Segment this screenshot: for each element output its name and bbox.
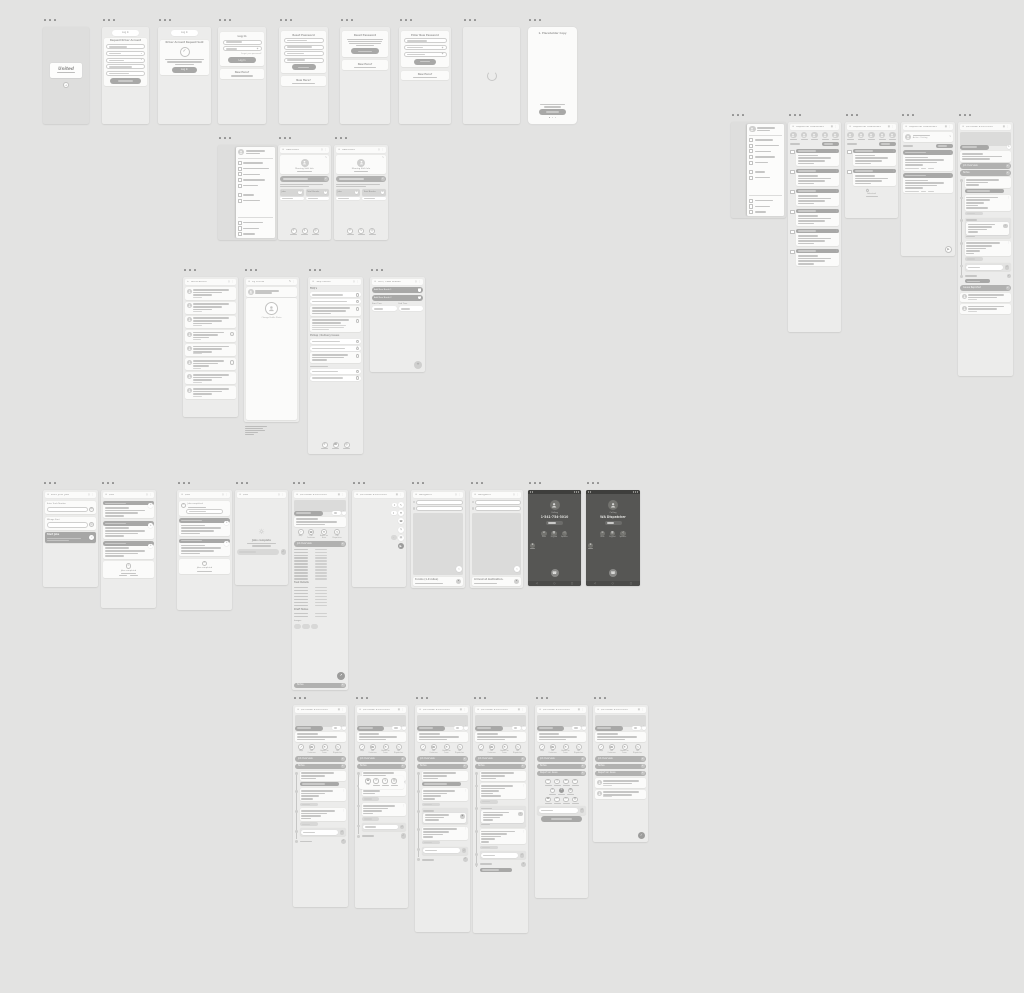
menu-icon[interactable]: ≡ — [597, 709, 599, 711]
frame-options-dots[interactable] — [400, 19, 412, 21]
dots-icon[interactable]: ⋮ — [400, 494, 402, 496]
menu-item[interactable] — [238, 193, 273, 197]
submit-issue-button[interactable] — [541, 816, 583, 822]
menu-icon[interactable]: ≡ — [239, 494, 241, 496]
input-pill[interactable] — [422, 841, 441, 845]
nav-drawer[interactable] — [236, 147, 276, 239]
menu-item[interactable] — [238, 199, 273, 203]
input-pill[interactable] — [106, 71, 145, 76]
section-toggle-button[interactable]: ▾ — [463, 764, 467, 768]
complete-job-button[interactable]: ✓ — [341, 839, 347, 845]
print-icon[interactable]: ▤ — [396, 494, 398, 496]
driver-avatar[interactable] — [790, 132, 797, 139]
frame-request-account[interactable]: Log InRequest Driver Account▾▾ — [102, 27, 149, 124]
frame-job-detail-timeline[interactable]: ≡Job Detail #XXXXXXX▤⋮↻Job Overview▾Note… — [958, 122, 1013, 376]
row-action-button[interactable]: + — [356, 293, 359, 296]
mileage-input[interactable] — [47, 522, 88, 528]
job-card-header[interactable]: ⋮ — [853, 169, 896, 174]
edit-icon[interactable]: ✎ — [949, 136, 951, 139]
payments-icon[interactable]: $ — [563, 797, 569, 803]
note-input[interactable] — [301, 830, 338, 835]
notification-card[interactable] — [960, 293, 1011, 303]
issue-input[interactable] — [539, 808, 579, 813]
frame-new-password[interactable]: Enter New Password◉◉New Here? — [399, 27, 451, 124]
input-pill[interactable]: ▾ — [106, 51, 145, 56]
back-to-job-button[interactable] — [965, 279, 991, 283]
input-pill[interactable] — [106, 64, 145, 69]
send-note-button[interactable]: ↗ — [520, 853, 525, 858]
submit-eod-pill[interactable] — [237, 549, 279, 555]
dots-icon[interactable]: ⋮ — [342, 494, 344, 496]
call-dispatcher-icon[interactable]: ◷Call Dispatcher — [393, 744, 404, 755]
input-pill[interactable] — [284, 45, 324, 50]
job-overview-bar[interactable]: Job Overview▾ — [295, 756, 346, 762]
driver-item[interactable] — [790, 132, 797, 140]
note-menu-icon[interactable]: ⋮ — [464, 828, 466, 831]
dots-icon[interactable]: ⋮ — [835, 126, 837, 128]
bell-icon[interactable]: ○ — [378, 149, 380, 151]
expand-route-button[interactable]: ▴ — [456, 579, 461, 584]
note-menu-icon[interactable]: ⋮ — [402, 805, 404, 808]
notes-bar[interactable]: Notes▾ — [960, 170, 1011, 176]
job-overview-bar[interactable]: Job Overview▴ — [294, 541, 346, 547]
menu-icon[interactable]: ≡ — [374, 281, 376, 283]
dots-icon[interactable]: ⋮ — [1007, 126, 1009, 128]
confirm-pill[interactable] — [965, 189, 1004, 193]
frame-jd-notes-photos[interactable]: ≡Job Detail #XXXXXXX▤⋮↻↗Map☎Call Custome… — [415, 705, 470, 932]
bell-icon[interactable]: ○ — [353, 281, 355, 283]
faq-card-open[interactable]: ✕ — [310, 318, 361, 332]
status-ribbon[interactable] — [357, 726, 384, 731]
note-menu-icon[interactable]: ⋮ — [342, 790, 344, 793]
input-pill[interactable] — [280, 197, 304, 201]
image-thumb[interactable] — [311, 624, 318, 629]
menu-icon[interactable]: ≡ — [849, 126, 851, 128]
login-button[interactable]: Log In — [172, 67, 196, 73]
menu-item[interactable] — [749, 210, 782, 214]
nav-back-icon[interactable]: ◁ — [594, 582, 596, 585]
call-icon[interactable]: ☎Call — [365, 778, 371, 786]
job-card-header[interactable]: ⋮ — [796, 169, 839, 174]
jobs-tile[interactable]: Jobs+ — [280, 189, 304, 196]
section-toggle-button[interactable]: ✕ — [324, 177, 328, 181]
frame-options-dots[interactable] — [293, 482, 305, 484]
map-icon[interactable]: ↗Map — [298, 529, 304, 538]
menu-icon[interactable]: ≡ — [539, 709, 541, 711]
frame-options-dots[interactable] — [294, 697, 306, 699]
menu-icon[interactable]: ≡ — [792, 126, 794, 128]
frame-onboarding[interactable]: 1. Placeholder Copy — [528, 27, 577, 124]
nav-recents-icon[interactable]: □ — [571, 582, 573, 585]
section-toggle-button[interactable]: ▾ — [641, 764, 645, 768]
issue-other-icon[interactable]: ✚ — [563, 779, 570, 786]
menu-item[interactable] — [749, 149, 782, 153]
faq-row[interactable]: + — [310, 376, 361, 381]
section-toggle-button[interactable]: ▴ — [341, 542, 345, 546]
job-card[interactable]: ⋮+ — [103, 501, 154, 518]
phone-icon[interactable]: ☎ — [333, 442, 339, 448]
job-card-header[interactable]: ⋮ — [179, 518, 230, 523]
row-action-button[interactable]: ✕ — [418, 296, 421, 299]
destination-input[interactable] — [475, 506, 521, 511]
driver-item[interactable] — [822, 132, 829, 140]
note-menu-icon[interactable]: ⋮ — [464, 790, 466, 793]
driver-avatar[interactable] — [868, 132, 875, 139]
input-pill[interactable] — [391, 535, 397, 540]
frame-jobs-complete[interactable]: ≡Jobs○⋮☼Jobs complete✓ — [235, 490, 288, 585]
add-break-button[interactable]: + — [324, 191, 328, 195]
job-card-header[interactable]: ⋮ — [796, 189, 839, 194]
status-ribbon[interactable] — [595, 726, 623, 731]
map-area[interactable] — [413, 513, 463, 576]
menu-item[interactable] — [749, 204, 782, 208]
dots-icon[interactable]: ⋮ — [459, 494, 461, 496]
change-photo-link[interactable]: Change Profile Photo — [248, 317, 295, 319]
payments-icon[interactable]: $ — [302, 228, 308, 234]
complete-job-button[interactable]: ✓ — [463, 857, 469, 863]
job-card[interactable]: ⋮ — [790, 229, 839, 246]
input-pill[interactable] — [362, 817, 380, 821]
driver-item[interactable] — [811, 132, 818, 140]
keypad-icon[interactable]: ▦Keypad — [551, 531, 557, 539]
sort-chip[interactable] — [822, 142, 839, 146]
driver-item[interactable] — [801, 132, 808, 140]
menu-icon[interactable]: ≡ — [419, 709, 421, 711]
call-customer-icon[interactable]: ☎Call Customer — [606, 744, 617, 755]
input-pill[interactable] — [106, 44, 145, 49]
notification-card[interactable] — [185, 287, 236, 299]
menu-icon[interactable]: ≡ — [338, 149, 340, 151]
frame-notifications[interactable]: ←Notifications○⋮ — [183, 277, 238, 417]
next-job-pill[interactable] — [186, 509, 224, 514]
job-card[interactable]: ⋮+ — [179, 539, 230, 556]
status-ribbon[interactable] — [537, 726, 564, 731]
job-card[interactable]: ⋮ — [847, 149, 896, 166]
driver-item[interactable] — [858, 132, 865, 140]
faq-card[interactable]: + — [310, 352, 361, 362]
input-pill[interactable] — [362, 797, 380, 801]
login-tab[interactable]: Log In — [112, 30, 139, 36]
mute-icon[interactable]: ⊘Mute — [541, 531, 547, 539]
dots-icon[interactable]: ⋮ — [517, 494, 519, 496]
job-card-header[interactable]: ⋮ — [796, 209, 839, 214]
job-card[interactable]: ⋮ — [847, 169, 896, 186]
frame-help-center[interactable]: ≡Help Center○⋮FAQ's+++✕Pickup / Delivery… — [308, 277, 363, 454]
notes-bar[interactable]: Notes▾ — [537, 764, 586, 770]
call-customer-icon[interactable]: ☎Call Customer — [547, 744, 558, 755]
frame-job-detail-info[interactable]: ≡Job Detail #XXXXXXX▤⋮↻↗Map☎Call Custome… — [292, 490, 348, 690]
row-action-button[interactable]: ✕ — [418, 288, 421, 291]
driver-avatar[interactable] — [832, 132, 839, 139]
section-toggle-button[interactable]: ▾ — [581, 757, 585, 761]
frame-options-dots[interactable] — [178, 482, 190, 484]
menu-icon[interactable]: ≡ — [356, 494, 358, 496]
frame-options-dots[interactable] — [959, 114, 971, 116]
issue-cancel-icon[interactable]: ✕ — [549, 788, 556, 795]
dots-icon[interactable]: ⋮ — [642, 709, 644, 711]
add-break-button[interactable]: + — [381, 191, 385, 195]
frame-options-dots[interactable] — [464, 19, 476, 21]
back-icon[interactable]: ← — [187, 281, 189, 283]
driver-item[interactable] — [889, 132, 896, 140]
bell-icon[interactable]: ○ — [513, 494, 515, 496]
add-break-fab[interactable]: + — [414, 361, 422, 369]
note-menu-icon[interactable]: ⋮ — [1007, 197, 1009, 200]
dots-icon[interactable]: ⋮ — [382, 149, 384, 151]
faq-row[interactable]: + — [310, 346, 361, 351]
input-pill[interactable] — [422, 803, 441, 807]
call-dispatcher-icon[interactable]: ◷Call Dispatcher — [332, 529, 343, 540]
issue-delay-icon[interactable]: ◷ — [554, 779, 561, 786]
dots-icon[interactable]: ⋮ — [892, 126, 894, 128]
nav-back-icon[interactable]: ◁ — [536, 582, 538, 585]
call-dispatcher-icon[interactable]: ◷Call Dispatcher — [332, 744, 343, 755]
job-card[interactable]: ⋮ — [790, 149, 839, 166]
end-call-button[interactable]: ☎ — [551, 569, 559, 577]
menu-icon[interactable]: ≡ — [905, 126, 907, 128]
nav-drawer[interactable] — [747, 124, 784, 217]
select-checkbox[interactable] — [790, 230, 795, 235]
request-account-button[interactable] — [110, 78, 140, 84]
parking-icon[interactable]: P — [290, 228, 297, 236]
sort-chip[interactable] — [936, 144, 953, 148]
driver-avatar[interactable] — [801, 132, 808, 139]
faq-row[interactable]: + — [310, 369, 361, 374]
job-number-chip[interactable] — [392, 726, 401, 729]
print-icon[interactable]: ▤ — [945, 126, 947, 128]
faq-row[interactable]: + — [310, 292, 361, 297]
notification-action-button[interactable] — [230, 332, 235, 337]
row-action-button[interactable]: + — [356, 370, 359, 373]
input-pill[interactable] — [362, 197, 386, 201]
menu-item[interactable] — [749, 138, 782, 142]
call-customer-icon[interactable]: ☎Call Customer — [306, 529, 317, 540]
parking-icon[interactable]: P — [373, 778, 380, 785]
frame-dashboard-2[interactable]: ≡Dashboard○⋮✎Morning Shift Info✕Jobs+Tot… — [334, 145, 388, 240]
job-card[interactable]: ⋮ — [790, 249, 839, 266]
input-pill[interactable] — [391, 511, 396, 514]
back-to-job-button[interactable] — [480, 868, 512, 872]
notification-card[interactable] — [960, 304, 1011, 314]
note-menu-icon[interactable]: ⋮ — [522, 831, 524, 834]
map-icon[interactable]: ↗Map — [539, 744, 545, 753]
job-card-header[interactable]: ⋮ — [179, 539, 230, 544]
notes-bar[interactable]: Notes▾ — [294, 683, 346, 689]
frame-options-dots[interactable] — [594, 697, 606, 699]
frame-navigation-2[interactable]: ≡Navigation○⋮♡Arrived at destination.▴ — [470, 490, 523, 588]
breaks-tile[interactable]: Total Breaks+ — [306, 189, 330, 196]
start-time-field[interactable] — [372, 306, 397, 311]
job-number-chip[interactable] — [632, 726, 641, 729]
frame-dashboard-1[interactable]: ≡Dashboard○⋮✎Morning Shift Info✕Jobs+Tot… — [278, 145, 331, 240]
dots-icon[interactable]: ⋮ — [342, 709, 344, 711]
frame-options-dots[interactable] — [902, 114, 914, 116]
messages-icon[interactable]: @ — [313, 228, 319, 234]
issue-list-icon[interactable]: ▦ — [568, 788, 574, 794]
report-issue-icon[interactable]: ⚑Report an Issue — [619, 744, 630, 755]
confirm-pill[interactable] — [300, 782, 339, 786]
job-card[interactable]: ⋮+ — [179, 518, 230, 535]
frame-jd-notes-full[interactable]: ≡Job Detail #XXXXXXX▤⋮↻↗Map☎Call Custome… — [473, 705, 528, 933]
issue-selected-icon[interactable]: ✕ — [558, 788, 565, 795]
dots-icon[interactable]: ⋮ — [325, 149, 327, 151]
shift-ended-bar[interactable]: ✕ — [336, 176, 386, 182]
frame-options-dots[interactable] — [245, 269, 257, 271]
jobs-tile[interactable]: Jobs+ — [336, 189, 360, 196]
job-card[interactable]: ⋮ — [903, 173, 953, 193]
payments-icon[interactable]: $ — [358, 228, 365, 236]
parking-icon[interactable]: P — [347, 228, 353, 234]
menu-icon[interactable]: ≡ — [47, 494, 49, 496]
job-overview-bar[interactable]: Job Overview▾ — [537, 756, 586, 762]
frame-options-dots[interactable] — [371, 269, 383, 271]
frame-options-dots[interactable] — [474, 697, 486, 699]
report-issue-icon[interactable]: ⚑Report an Issue — [441, 744, 452, 755]
issue-blocked-icon[interactable]: ⊘ — [572, 779, 578, 785]
job-overview-bar[interactable]: Job Overview▾ — [357, 756, 406, 762]
notes-bar[interactable]: Notes▾ — [595, 764, 646, 770]
frame-jobs-list-1[interactable]: ≡Jobs○⋮⋮+⋮+⋮+☼Jobs completed — [101, 490, 156, 608]
report-issue-icon[interactable]: ⚑Report an Issue — [560, 744, 571, 755]
dots-icon[interactable]: ⋮ — [232, 281, 234, 283]
report-issue-bar[interactable]: Report an Issue▾ — [595, 771, 646, 777]
menu-item[interactable] — [749, 161, 782, 165]
input-pill[interactable] — [965, 257, 984, 261]
job-card[interactable]: ⋮ — [790, 209, 839, 226]
frame-options-dots[interactable] — [471, 482, 483, 484]
section-toggle-button[interactable]: ▾ — [521, 757, 525, 761]
input-pill[interactable] — [404, 38, 447, 43]
circle-button[interactable]: ✓ — [1003, 224, 1008, 229]
note-menu-icon[interactable]: ⋮ — [522, 785, 524, 788]
photo-thumb[interactable]: ▣ — [460, 814, 465, 819]
call-dispatcher-icon[interactable]: ◷Call Dispatcher — [454, 744, 465, 755]
job-card[interactable]: ⋮ — [903, 150, 953, 170]
payments-icon[interactable]: $ — [563, 797, 570, 804]
select-checkbox[interactable] — [790, 190, 795, 195]
menu-item[interactable] — [749, 199, 782, 203]
frame-options-dots[interactable] — [102, 482, 114, 484]
call-dispatcher-icon[interactable]: ◷Call Dispatcher — [573, 744, 584, 755]
menu-icon[interactable]: ≡ — [282, 149, 284, 151]
section-toggle-button[interactable]: ✕ — [1006, 286, 1010, 290]
refresh-button[interactable]: ↻ — [402, 726, 406, 730]
driver-avatar[interactable] — [847, 132, 854, 139]
refresh-button[interactable]: ↻ — [1007, 145, 1012, 150]
dots-icon[interactable]: ⋮ — [402, 709, 404, 711]
contact-icon[interactable]: ▤ — [391, 778, 398, 785]
frame-start-jobs[interactable]: ≡Start your Jobs○⋮Enter Truck Number▤Mil… — [43, 490, 98, 587]
contact-icon[interactable]: ▤ — [391, 778, 397, 784]
frame-options-dots[interactable] — [416, 697, 428, 699]
map-icon[interactable]: ↗Map — [478, 744, 484, 753]
dots-icon[interactable]: ⋮ — [226, 494, 228, 496]
notification-card[interactable] — [185, 372, 236, 384]
section-toggle-button[interactable]: ✕ — [381, 177, 385, 181]
email-support-button[interactable] — [351, 48, 379, 54]
send-note-button[interactable]: ↗ — [1005, 265, 1010, 270]
end-call-button[interactable]: ☎ — [609, 569, 617, 577]
expand-faq-button[interactable]: + — [356, 354, 360, 358]
add-call-icon[interactable]: ✚ — [530, 543, 535, 548]
origin-input[interactable] — [475, 500, 521, 505]
status-ribbon[interactable] — [295, 726, 323, 731]
break-2-pill[interactable]: Add New Break 2✕ — [372, 295, 423, 301]
call-customer-icon[interactable]: ☎Call Customer — [486, 744, 497, 755]
driver-avatar[interactable] — [858, 132, 865, 139]
resume-fab[interactable]: ▶ — [398, 543, 405, 550]
notification-card[interactable] — [595, 778, 646, 788]
driver-item[interactable] — [847, 132, 854, 140]
keypad-icon[interactable]: ▦Keypad — [609, 531, 615, 539]
menu-icon[interactable]: ≡ — [248, 281, 250, 283]
contact-icon[interactable]: ▤ — [572, 797, 578, 803]
notes-bar[interactable]: Notes▾ — [475, 764, 526, 770]
faq-card[interactable]: + — [310, 306, 361, 316]
input-pill[interactable] — [300, 822, 319, 826]
menu-item[interactable] — [749, 144, 782, 148]
job-card[interactable]: ⋮ — [790, 169, 839, 186]
job-card[interactable]: ⋮+ — [103, 521, 154, 538]
frame-options-dots[interactable] — [280, 19, 292, 21]
menu-icon[interactable]: ≡ — [297, 709, 299, 711]
accept-job-button[interactable]: + — [148, 544, 153, 549]
job-card-header[interactable]: ⋮ — [103, 521, 154, 526]
select-checkbox[interactable] — [790, 210, 795, 215]
input-pill[interactable]: ▾ — [106, 58, 145, 63]
call-customer-icon[interactable]: ☎Call Customer — [367, 744, 378, 755]
frame-loading[interactable] — [463, 27, 520, 124]
report-issue-icon[interactable]: ⚑Report an Issue — [499, 744, 510, 755]
continue-button[interactable]: → — [63, 82, 69, 88]
new-here-card[interactable]: New Here? — [342, 60, 388, 70]
frame-options-dots[interactable] — [309, 269, 321, 271]
call-dispatcher-icon[interactable]: ◷Call Dispatcher — [632, 744, 643, 755]
job-card-header[interactable]: ⋮ — [103, 501, 154, 506]
edit-icon[interactable]: ✎ — [325, 157, 327, 160]
select-checkbox[interactable] — [847, 150, 852, 155]
frame-reset-sent[interactable]: Reset PasswordNew Here? — [340, 27, 390, 124]
bell-icon[interactable]: ○ — [321, 149, 323, 151]
print-icon[interactable]: ▤ — [1003, 126, 1005, 128]
call-customer-icon[interactable]: ☎Call Customer — [306, 744, 317, 755]
issue-delay-icon[interactable]: ◷ — [554, 779, 560, 785]
job-card-header[interactable]: ⋮ — [796, 249, 839, 254]
frame-dispatcher-dashboard-1[interactable]: ≡Dispatcher Dashboard▤⋮⋮⋮⋮⋮⋮⋮ — [788, 122, 841, 332]
scan-icon[interactable]: ▤ — [89, 507, 94, 512]
dots-icon[interactable]: ⋮ — [464, 709, 466, 711]
menu-item[interactable] — [238, 232, 273, 236]
start-jobs-card[interactable]: Start Jobs↗ — [45, 532, 96, 543]
menu-item[interactable] — [238, 184, 273, 188]
map-area[interactable] — [472, 513, 521, 576]
call-icon[interactable]: ☎ — [545, 797, 552, 804]
parking-icon[interactable]: P — [554, 797, 561, 804]
frame-options-dots[interactable] — [335, 137, 347, 139]
bell-icon[interactable]: ○ — [278, 494, 280, 496]
input-pill[interactable] — [392, 503, 396, 506]
notification-card[interactable] — [185, 316, 236, 328]
frame-options-dots[interactable] — [529, 19, 541, 21]
menu-icon[interactable]: ≡ — [359, 709, 361, 711]
truck-number-input[interactable] — [47, 507, 88, 513]
complete-job-button[interactable]: ✓ — [521, 862, 526, 867]
destination-input[interactable] — [416, 506, 463, 511]
next-button[interactable] — [539, 109, 567, 115]
navigate-fab[interactable]: ↗ — [337, 672, 345, 680]
bell-icon[interactable]: ○ — [222, 494, 224, 496]
notification-card[interactable] — [185, 386, 236, 398]
